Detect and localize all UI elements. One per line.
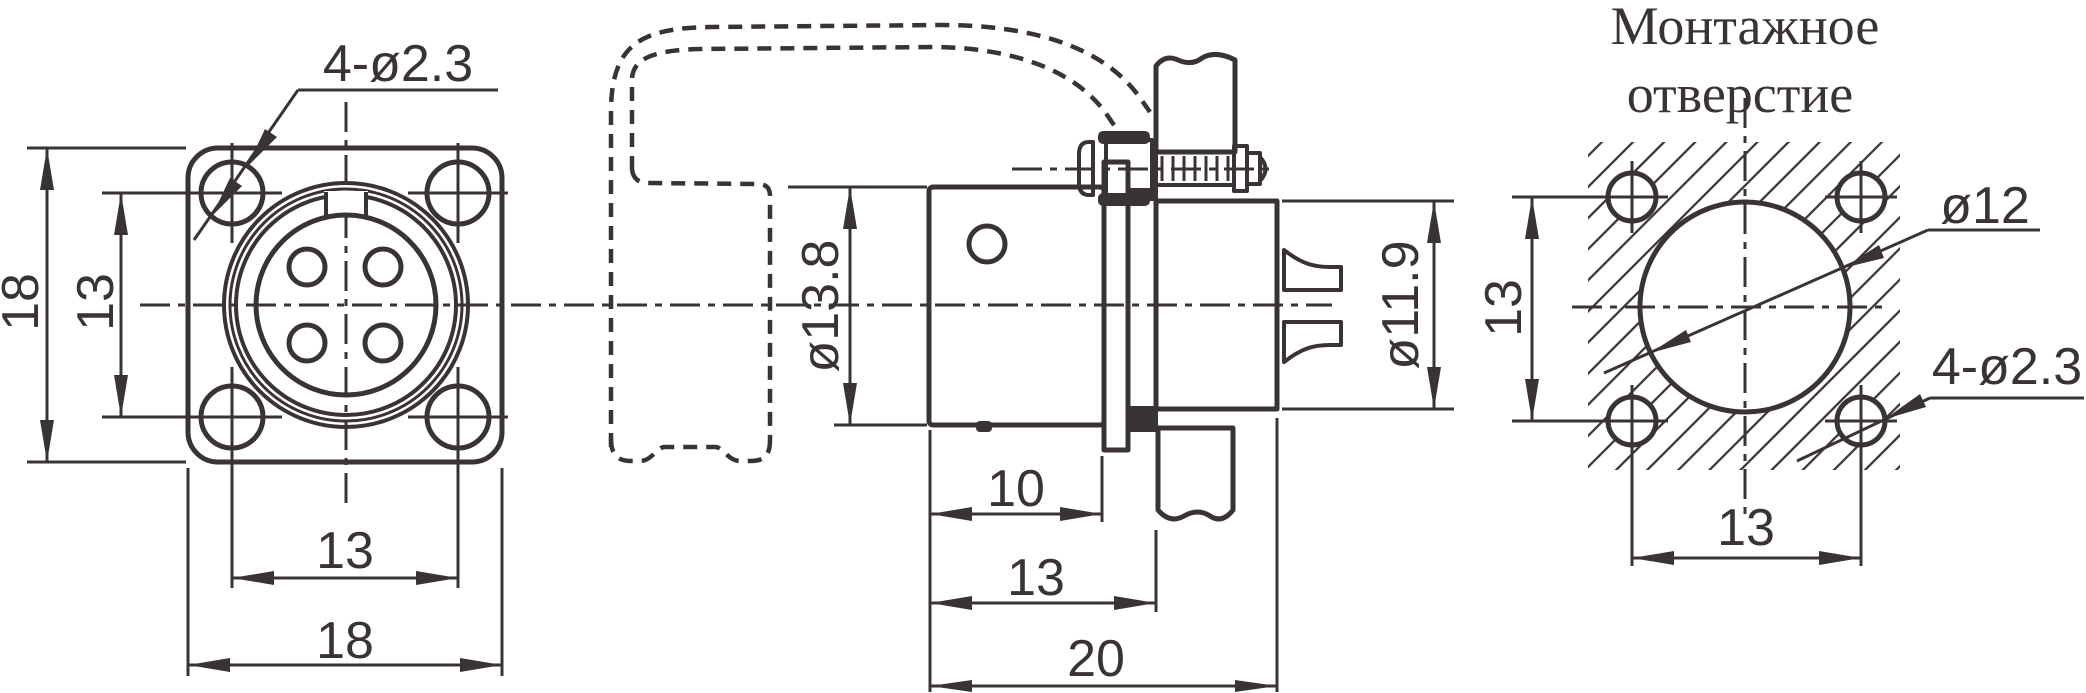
view-title-line2: отверстие — [1627, 64, 1853, 124]
technical-drawing-page: 18 13 13 18 — [0, 0, 2086, 693]
panel-wall — [1156, 54, 1235, 518]
dim-hole-pitch-vertical-text: 13 — [67, 273, 125, 331]
body-vent-hole — [969, 226, 1005, 262]
dim-length-13: 13 — [930, 530, 1156, 612]
dim-length-13-text: 13 — [1007, 549, 1065, 607]
panel-wall-lower — [1158, 428, 1233, 519]
view-title: Монтажное отверстие — [1611, 0, 1880, 124]
dim-hole-pitch-horizontal-text: 13 — [316, 522, 374, 580]
cable-outer-curve — [611, 25, 1150, 447]
screw-threads — [1162, 156, 1228, 181]
label-mount-holes-text: 4-ø2.3 — [1932, 338, 2082, 396]
keyway-gap — [324, 191, 368, 216]
mounting-screw — [1012, 131, 1270, 206]
view-title-line1: Монтажное — [1611, 0, 1880, 56]
label-front-mount-holes-text: 4-ø2.3 — [323, 35, 473, 93]
mounting-hole-view: 13 13 ø12 4-ø2.3 Монтажное — [1475, 0, 2084, 566]
dim-hole-pitch-horizontal: 13 — [232, 452, 458, 588]
connector-drawing-svg: 18 13 13 18 — [0, 0, 2086, 693]
dim-flange-width-text: 18 — [316, 612, 374, 670]
body-key-tab — [976, 421, 992, 432]
dim-flange-height-text: 18 — [0, 273, 50, 331]
dim-mount-pitch-vertical: 13 — [1475, 197, 1602, 421]
dim-body-diameter-text: ø13.8 — [792, 240, 850, 373]
lower-contact — [1284, 322, 1341, 362]
dim-mount-pitch-vertical-text: 13 — [1475, 279, 1533, 337]
dim-length-10-text: 10 — [987, 460, 1045, 518]
label-panel-hole-diameter-text: ø12 — [1940, 177, 2030, 235]
clamp-lip-top — [1098, 131, 1150, 144]
clamp-lip-bottom — [1098, 193, 1150, 206]
dim-length-20-text: 20 — [1067, 630, 1125, 688]
cable-inner-curve — [632, 47, 1116, 170]
panel-wall-upper — [1156, 54, 1235, 152]
dim-insert-diameter-text: ø11.9 — [1372, 240, 1430, 369]
cable-grommet-edge — [611, 438, 770, 461]
upper-contact — [1284, 250, 1341, 290]
dim-mount-pitch-horizontal-text: 13 — [1717, 499, 1775, 557]
side-view: ø13.8 ø11.9 10 13 — [611, 25, 1454, 692]
cable-phantom-outline — [611, 25, 1150, 461]
